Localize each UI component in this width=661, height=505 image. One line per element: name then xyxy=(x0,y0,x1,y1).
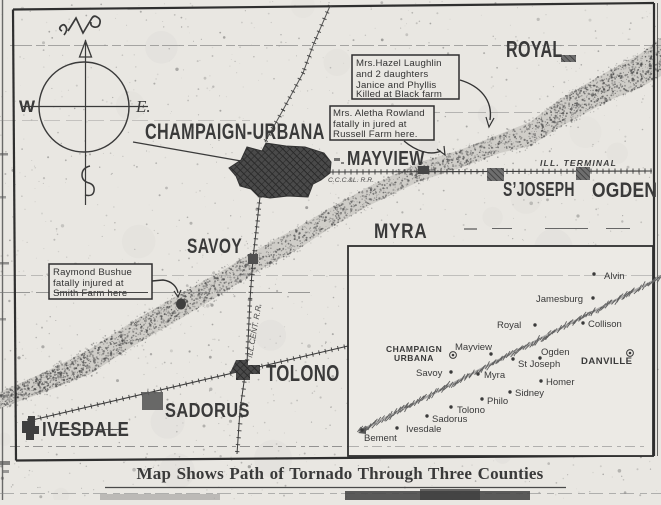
svg-text:W: W xyxy=(19,97,36,116)
svg-text:E.: E. xyxy=(135,97,151,116)
